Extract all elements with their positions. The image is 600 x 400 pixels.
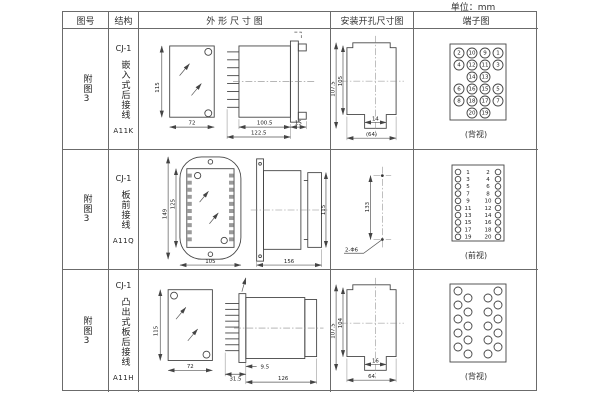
svg-text:9: 9 bbox=[483, 51, 487, 57]
row1-terminal-caption: (背视) bbox=[465, 129, 487, 140]
svg-text:15: 15 bbox=[482, 87, 489, 93]
row2-structure-cell: CJ-1 板前接线 A11Q bbox=[109, 150, 139, 270]
row2-front-view: 149 125 105 bbox=[162, 156, 240, 264]
svg-text:15: 15 bbox=[465, 220, 472, 226]
svg-text:11: 11 bbox=[465, 205, 472, 211]
row2-fig-no: 附图3 bbox=[81, 194, 91, 225]
corner-screw-icon bbox=[203, 351, 210, 358]
row3-structure-desc: 凸出式板后接线 bbox=[119, 297, 129, 367]
row2-side-view: 156 115 bbox=[250, 158, 327, 266]
svg-text:18: 18 bbox=[485, 227, 492, 233]
svg-text:6: 6 bbox=[457, 87, 461, 93]
svg-text:5: 5 bbox=[496, 87, 500, 93]
row3-terminal-cell: (背视) bbox=[414, 270, 538, 392]
svg-text:2: 2 bbox=[457, 51, 461, 57]
row3-outline-drawing: 115 72 bbox=[140, 272, 330, 390]
dim-front-w: 72 bbox=[188, 120, 195, 126]
row2-structure-desc: 板前接线 bbox=[119, 190, 129, 230]
row3-structure-model: CJ-1 bbox=[116, 281, 132, 290]
dim-front-w: 72 bbox=[186, 364, 193, 370]
row1-outline-drawing: 115 72 bbox=[140, 30, 330, 149]
row3-structure-code: A11H bbox=[113, 374, 134, 382]
corner-screw-icon bbox=[204, 109, 211, 116]
svg-text:4: 4 bbox=[486, 177, 490, 183]
row2-terminal-caption: (前视) bbox=[465, 250, 487, 261]
corner-screw-icon bbox=[194, 172, 200, 178]
dim-notch-w: 14 bbox=[372, 116, 379, 122]
svg-text:17: 17 bbox=[465, 227, 472, 233]
row3-structure-cell: CJ-1 凸出式板后接线 A11H bbox=[109, 270, 139, 392]
header-terminal: 端子图 bbox=[414, 12, 538, 29]
dim-side-rear: 15 bbox=[294, 120, 301, 126]
row1-install-cell: 107.5 105 14 (64) bbox=[331, 29, 414, 150]
row1-structure-desc: 嵌入式后接线 bbox=[119, 60, 129, 120]
row2-install-drawing: 133 2-Φ6 bbox=[331, 151, 413, 269]
dim-side-body: 100.5 bbox=[256, 120, 272, 126]
dim-total-w: 64 bbox=[368, 374, 375, 380]
row3-side-view: 9.5 31.5 126 bbox=[225, 278, 323, 384]
dim-side-len: 126 bbox=[278, 376, 289, 382]
svg-text:2: 2 bbox=[486, 169, 490, 175]
page: 单位：mm 图号 结构 外 形 尺 寸 图 安装开孔尺寸图 端子图 附图3 CJ… bbox=[0, 0, 600, 400]
svg-text:16: 16 bbox=[469, 87, 476, 93]
svg-text:1: 1 bbox=[466, 169, 470, 175]
svg-text:14: 14 bbox=[485, 213, 492, 219]
row3-front-view: 115 72 bbox=[153, 290, 212, 371]
glass-mark-icon bbox=[191, 83, 201, 95]
row2-structure-model: CJ-1 bbox=[116, 174, 132, 183]
row3-fig-cell: 附图3 bbox=[63, 270, 109, 392]
row3-fig-no: 附图3 bbox=[81, 316, 91, 347]
svg-text:19: 19 bbox=[482, 111, 489, 117]
row1-outline-cell: 115 72 bbox=[139, 29, 331, 150]
dim-side-gap: 9.5 bbox=[260, 364, 269, 370]
dim-hole-dist: 133 bbox=[365, 201, 371, 211]
dim-front-w: 105 bbox=[205, 258, 215, 264]
row1-structure-cell: CJ-1 嵌入式后接线 A11K bbox=[109, 29, 139, 150]
row2-outline-cell: 149 125 105 bbox=[139, 150, 331, 270]
dim-side-total: 122.5 bbox=[250, 130, 266, 136]
svg-text:19: 19 bbox=[465, 234, 472, 240]
corner-screw-icon bbox=[204, 48, 211, 55]
svg-text:13: 13 bbox=[465, 213, 472, 219]
svg-text:5: 5 bbox=[466, 184, 470, 190]
dim-front-h: 115 bbox=[154, 82, 160, 92]
header-install: 安装开孔尺寸图 bbox=[331, 12, 414, 29]
row3-terminal-diagram bbox=[414, 280, 538, 368]
svg-text:10: 10 bbox=[469, 51, 476, 57]
dim-front-h-inner: 125 bbox=[170, 198, 176, 208]
row2-terminal-diagram: 1357911131517192468101214161820 bbox=[414, 159, 538, 247]
svg-text:7: 7 bbox=[466, 191, 470, 197]
row1-terminal-diagram: 2109141211314136161558181772019 bbox=[414, 38, 538, 126]
row1-fig-no: 附图3 bbox=[81, 74, 91, 105]
row1-install-drawing: 107.5 105 14 (64) bbox=[331, 30, 413, 148]
glass-mark-icon bbox=[176, 307, 186, 319]
svg-text:17: 17 bbox=[482, 99, 489, 105]
dim-inner-h: 104 bbox=[338, 317, 344, 328]
screw-icon bbox=[208, 159, 213, 164]
dim-inner-h: 105 bbox=[338, 76, 344, 86]
row2-outline-drawing: 149 125 105 bbox=[140, 151, 330, 269]
row2-terminal-cell: 1357911131517192468101214161820 (前视) bbox=[414, 150, 538, 270]
row1-fig-cell: 附图3 bbox=[63, 29, 109, 150]
dim-front-h-outer: 149 bbox=[162, 208, 168, 219]
svg-text:18: 18 bbox=[469, 99, 476, 105]
corner-screw-icon bbox=[221, 237, 227, 243]
svg-text:13: 13 bbox=[482, 75, 489, 81]
dim-outer-h: 107.5 bbox=[331, 81, 337, 96]
screw-icon bbox=[208, 251, 213, 256]
dim-side-h: 115 bbox=[320, 204, 326, 214]
row1-terminal-cell: 2109141211314136161558181772019 (背视) bbox=[414, 29, 538, 150]
hole-label: 2-Φ6 bbox=[345, 247, 359, 253]
row2-install-cell: 133 2-Φ6 bbox=[331, 150, 414, 270]
svg-text:1: 1 bbox=[496, 51, 500, 57]
dim-front-h: 115 bbox=[153, 326, 159, 336]
row1-structure-code: A11K bbox=[113, 127, 133, 135]
corner-screw-icon bbox=[170, 292, 177, 299]
svg-text:10: 10 bbox=[485, 198, 492, 204]
hook-arrow-icon bbox=[241, 278, 245, 292]
dim-notch-w: 16 bbox=[372, 358, 379, 364]
dim-side-len: 156 bbox=[283, 258, 294, 264]
dim-side-comb: 31.5 bbox=[229, 377, 241, 383]
svg-text:8: 8 bbox=[486, 191, 490, 197]
svg-text:7: 7 bbox=[496, 99, 500, 105]
svg-text:9: 9 bbox=[466, 198, 470, 204]
svg-text:20: 20 bbox=[469, 111, 476, 117]
svg-text:11: 11 bbox=[482, 63, 489, 69]
row3-outline-cell: 115 72 bbox=[139, 270, 331, 392]
header-outline: 外 形 尺 寸 图 bbox=[139, 12, 331, 29]
glass-mark-icon bbox=[179, 63, 189, 75]
hook-icon bbox=[294, 32, 301, 40]
svg-text:3: 3 bbox=[496, 63, 500, 69]
row3-install-cell: 107.5 104 16 64 bbox=[331, 270, 414, 392]
row1-front-view: 115 72 bbox=[154, 45, 213, 126]
row3-install-drawing: 107.5 104 16 64 bbox=[331, 272, 413, 390]
svg-text:12: 12 bbox=[485, 205, 492, 211]
row1-structure-model: CJ-1 bbox=[116, 44, 132, 53]
row2-fig-cell: 附图3 bbox=[63, 150, 109, 270]
row2-structure-code: A11Q bbox=[113, 237, 134, 245]
svg-text:16: 16 bbox=[485, 220, 492, 226]
svg-text:3: 3 bbox=[466, 177, 470, 183]
svg-text:14: 14 bbox=[469, 75, 476, 81]
svg-text:8: 8 bbox=[457, 99, 461, 105]
svg-text:20: 20 bbox=[485, 234, 492, 240]
svg-text:4: 4 bbox=[457, 63, 461, 69]
dim-total-w: (64) bbox=[366, 132, 377, 138]
glass-mark-icon bbox=[187, 329, 197, 341]
row1-side-view: 100.5 15 122.5 bbox=[227, 32, 314, 139]
row3-terminal-caption: (背视) bbox=[465, 371, 487, 382]
svg-text:6: 6 bbox=[486, 184, 490, 190]
header-structure: 结构 bbox=[109, 12, 139, 29]
dim-outer-h: 107.5 bbox=[331, 323, 337, 338]
svg-text:12: 12 bbox=[469, 63, 476, 69]
header-fig-no: 图号 bbox=[63, 12, 109, 29]
mount-hole-icon bbox=[381, 174, 384, 177]
spec-table: 图号 结构 外 形 尺 寸 图 安装开孔尺寸图 端子图 附图3 CJ-1 嵌入式… bbox=[62, 11, 537, 391]
